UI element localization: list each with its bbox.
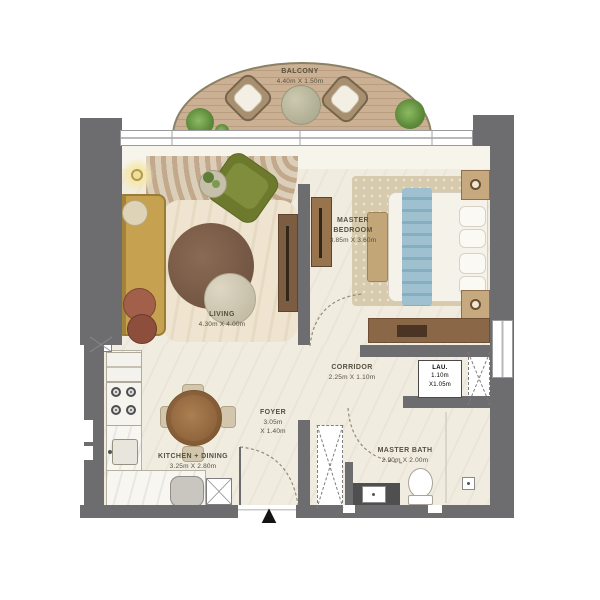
sink-drain-icon: [372, 493, 375, 496]
floor-plan: BALCONY 4.40m X 1.50m LIVING 4.30m X 4.0…: [0, 0, 600, 600]
room-name: LAU.: [419, 364, 461, 372]
burner-icon: [126, 387, 136, 397]
bedroom-dresser: [368, 318, 490, 343]
entry-triangle-icon: ▲: [250, 503, 288, 528]
room-dims: X1.05m: [419, 381, 461, 389]
wall-notch: [343, 505, 355, 513]
toilet-tank: [408, 495, 433, 505]
plant-icon: [395, 99, 425, 129]
room-dims: 2.90m X 2.00m: [355, 456, 455, 465]
room-dims: 3.85m X 3.60m: [316, 236, 390, 245]
sofa-pillow: [122, 200, 148, 226]
dining-chair: [220, 406, 236, 428]
room-name: BALCONY: [260, 67, 340, 77]
under-counter-appliance: [170, 476, 204, 507]
chair-cushion: [231, 81, 265, 115]
laundry-label-box: LAU. 1.10m X1.05m: [418, 360, 462, 398]
balcony-label: BALCONY 4.40m X 1.50m: [260, 67, 340, 86]
window-top-band: [120, 130, 473, 146]
wall-notch: [428, 505, 442, 513]
master-bath-label: MASTER BATH 2.90m X 2.00m: [355, 446, 455, 465]
bed-pillow: [459, 206, 486, 227]
room-name: KITCHEN + DINING: [143, 452, 243, 462]
pouf: [127, 314, 157, 344]
room-dims: 3.25m X 2.80m: [143, 462, 243, 471]
kitchen-dining-label: KITCHEN + DINING 3.25m X 2.80m: [143, 452, 243, 471]
room-dims: X 1.40m: [247, 427, 299, 436]
wall-bath-left-stub: [345, 462, 353, 508]
master-bedroom-label: MASTER BEDROOM 3.85m X 3.60m: [316, 216, 390, 245]
room-name: MASTER BEDROOM: [323, 216, 383, 236]
lamp-icon: [470, 299, 481, 310]
wall-bottom-right: [296, 505, 514, 518]
room-name: LIVING: [172, 310, 272, 320]
service-shaft: [206, 478, 232, 505]
window-left: [84, 420, 93, 442]
dresser-object: [397, 325, 427, 337]
wall-top-right-block: [473, 115, 514, 146]
floor-lamp-icon: [131, 169, 143, 181]
wall-living-bedroom-divider: [298, 184, 310, 345]
foyer-label: FOYER 3.05m X 1.40m: [247, 408, 299, 436]
room-name: MASTER BATH: [355, 446, 455, 456]
lamp-icon: [470, 179, 481, 190]
bed-pillow: [459, 229, 486, 248]
burner-icon: [111, 387, 121, 397]
corridor-label: CORRIDOR 2.25m X 1.10m: [307, 363, 397, 382]
drain-dot-icon: [467, 482, 470, 485]
wall-bottom-left: [80, 505, 238, 518]
room-dims: 4.30m X 4.00m: [172, 320, 272, 329]
window-left: [84, 446, 93, 460]
balcony-table: [281, 85, 321, 125]
burner-icon: [111, 405, 121, 415]
room-dims: 4.40m X 1.50m: [260, 77, 340, 86]
living-label: LIVING 4.30m X 4.00m: [172, 310, 272, 329]
nightstand-top: [461, 170, 490, 200]
wall-bedroom-corridor: [360, 345, 490, 357]
burner-icon: [126, 405, 136, 415]
chair-cushion: [328, 82, 362, 116]
nightstand-bottom: [461, 290, 490, 320]
kitchen-sink: [112, 439, 138, 465]
faucet-icon: [108, 450, 112, 454]
room-dims: 1.10m: [419, 372, 461, 380]
dining-table: [166, 390, 222, 446]
room-dims: 2.25m X 1.10m: [307, 373, 397, 382]
wall-foyer-right: [298, 420, 310, 508]
room-name: CORRIDOR: [307, 363, 397, 373]
room-name: FOYER: [247, 408, 299, 418]
console-detail: [286, 226, 289, 301]
plant-icon: [212, 180, 220, 188]
toilet: [408, 468, 433, 498]
bed-runner: [402, 188, 432, 306]
foyer-closet: [317, 425, 343, 508]
room-dims: 3.05m: [247, 418, 299, 427]
bed-pillow: [459, 253, 486, 274]
wall-left-upper: [80, 118, 122, 345]
window-right: [492, 320, 513, 378]
kitchen-appliance: [106, 352, 142, 382]
